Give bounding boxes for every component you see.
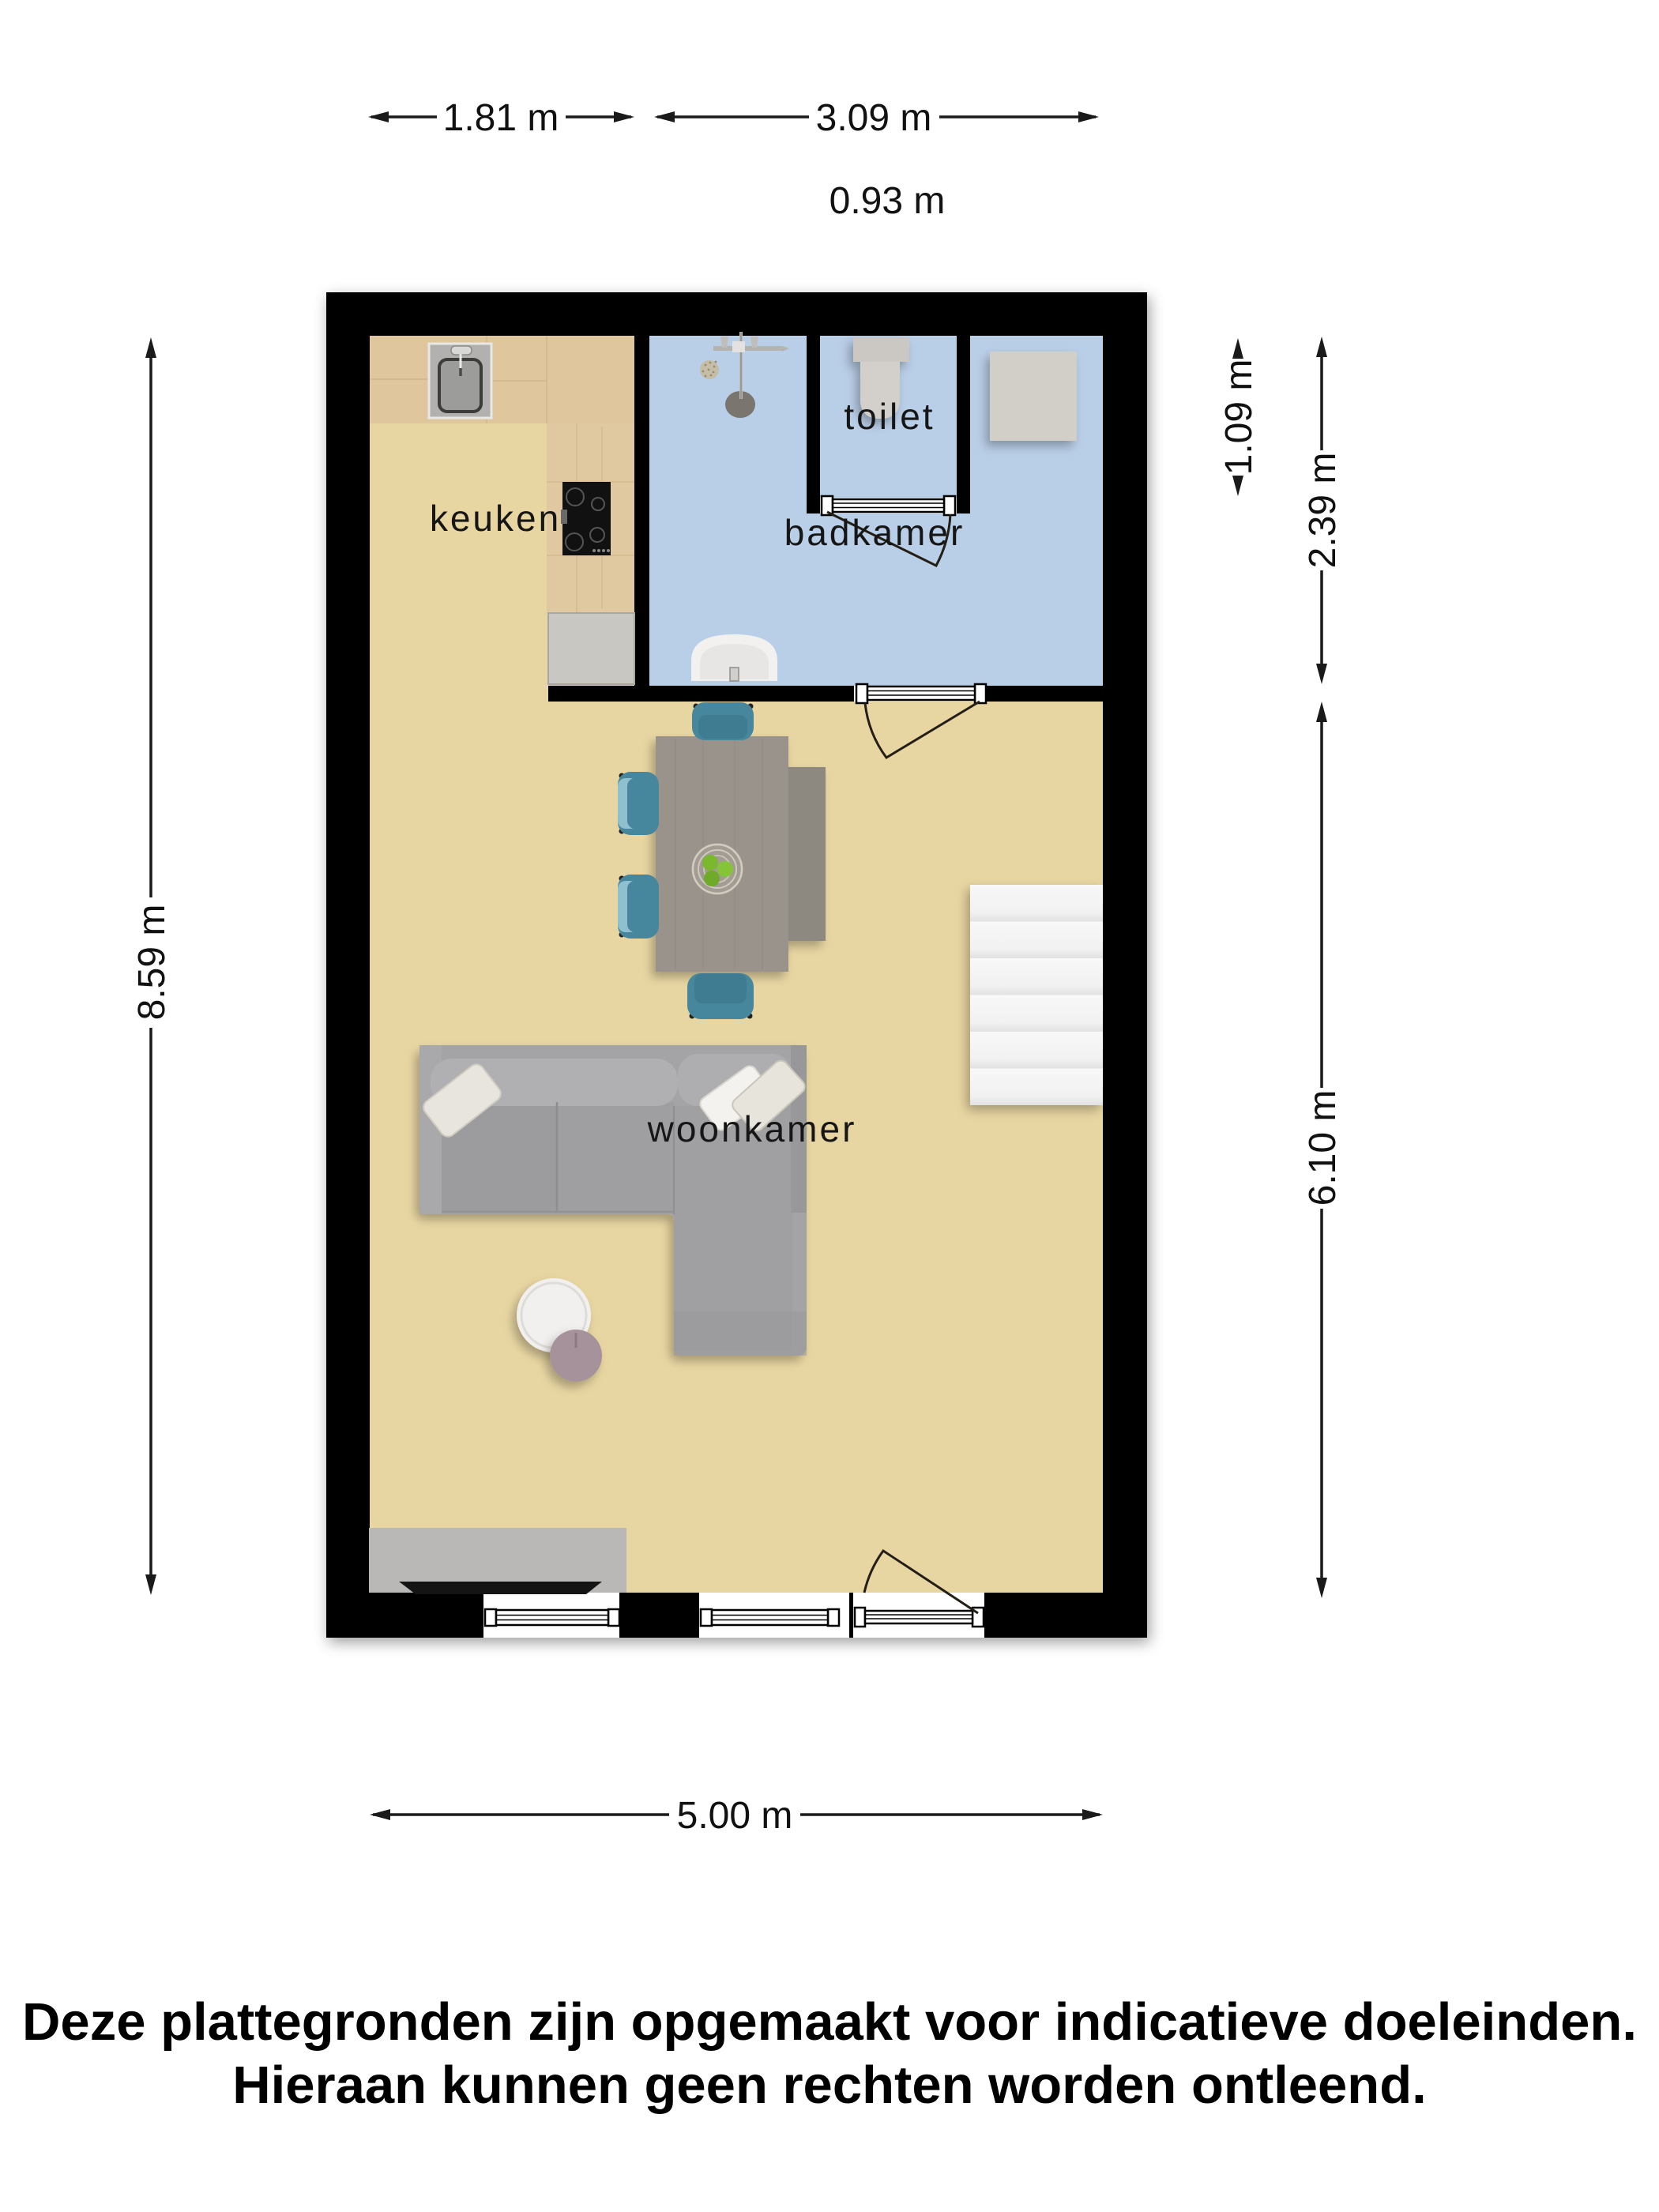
svg-text:5.00 m: 5.00 m — [677, 1795, 793, 1837]
svg-text:6.10 m: 6.10 m — [1302, 1090, 1344, 1206]
svg-text:Deze plattegronden zijn opgema: Deze plattegronden zijn opgemaakt voor i… — [22, 1992, 1637, 2052]
svg-text:1.09 m: 1.09 m — [1218, 359, 1260, 476]
svg-text:woonkamer: woonkamer — [647, 1108, 857, 1149]
svg-text:badkamer: badkamer — [784, 512, 965, 553]
svg-text:toilet: toilet — [844, 396, 935, 437]
svg-text:2.39 m: 2.39 m — [1302, 453, 1344, 569]
svg-text:8.59 m: 8.59 m — [131, 905, 173, 1021]
svg-text:keuken: keuken — [430, 498, 561, 539]
svg-text:0.93 m: 0.93 m — [829, 180, 946, 222]
svg-text:3.09 m: 3.09 m — [816, 97, 932, 139]
svg-text:Hieraan kunnen geen rechten wo: Hieraan kunnen geen rechten worden ontle… — [232, 2056, 1427, 2115]
svg-text:1.81 m: 1.81 m — [443, 97, 559, 139]
